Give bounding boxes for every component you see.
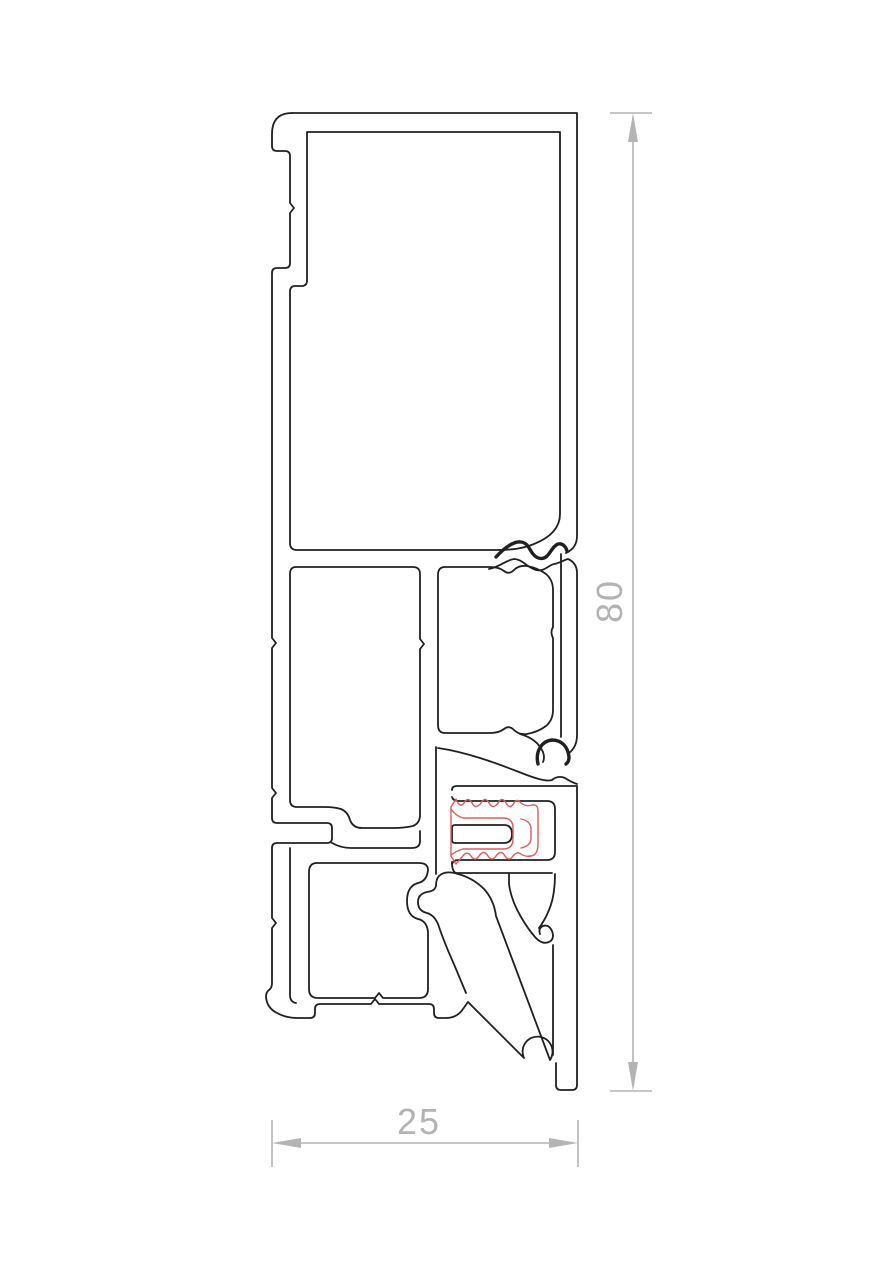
dimension-width: 25 [272, 1101, 578, 1167]
height-dimension-label: 80 [589, 579, 630, 623]
profile-outline [266, 113, 577, 1090]
drawing-canvas: 80 25 [0, 0, 889, 1280]
width-arrow-right-icon [549, 1138, 578, 1148]
height-arrow-down-icon [628, 1062, 638, 1091]
profile-inner-left-lower [290, 848, 296, 1003]
profile-top-chamber [290, 132, 560, 550]
gasket-outer-with-teeth [451, 799, 538, 864]
gasket-bulb-inner [521, 819, 531, 848]
width-dimension-label: 25 [397, 1101, 441, 1142]
profile-j-hook-inner [539, 874, 555, 928]
profile-j-hook [509, 874, 553, 943]
technical-drawing: 80 25 [0, 0, 889, 1280]
dimension-height: 80 [589, 113, 652, 1091]
profile-left-middle-chamber [290, 567, 424, 828]
width-arrow-left-icon [272, 1138, 301, 1148]
profile-groove1-lower-lip [489, 559, 577, 753]
profile-channel-finger [452, 825, 512, 843]
gasket-seal [451, 799, 538, 864]
profile-right-middle-chamber [438, 566, 553, 734]
profile-web-bottom [332, 831, 420, 848]
profile-channel-lower-bar [452, 862, 552, 873]
profile-channel-outer [452, 786, 577, 1090]
height-arrow-up-icon [628, 113, 638, 142]
profile-top-right-wall [292, 113, 577, 553]
profile-groove2-shelf [438, 748, 577, 784]
gasket-inner-around-finger [451, 809, 513, 855]
profile-lower-chamber [309, 863, 428, 998]
